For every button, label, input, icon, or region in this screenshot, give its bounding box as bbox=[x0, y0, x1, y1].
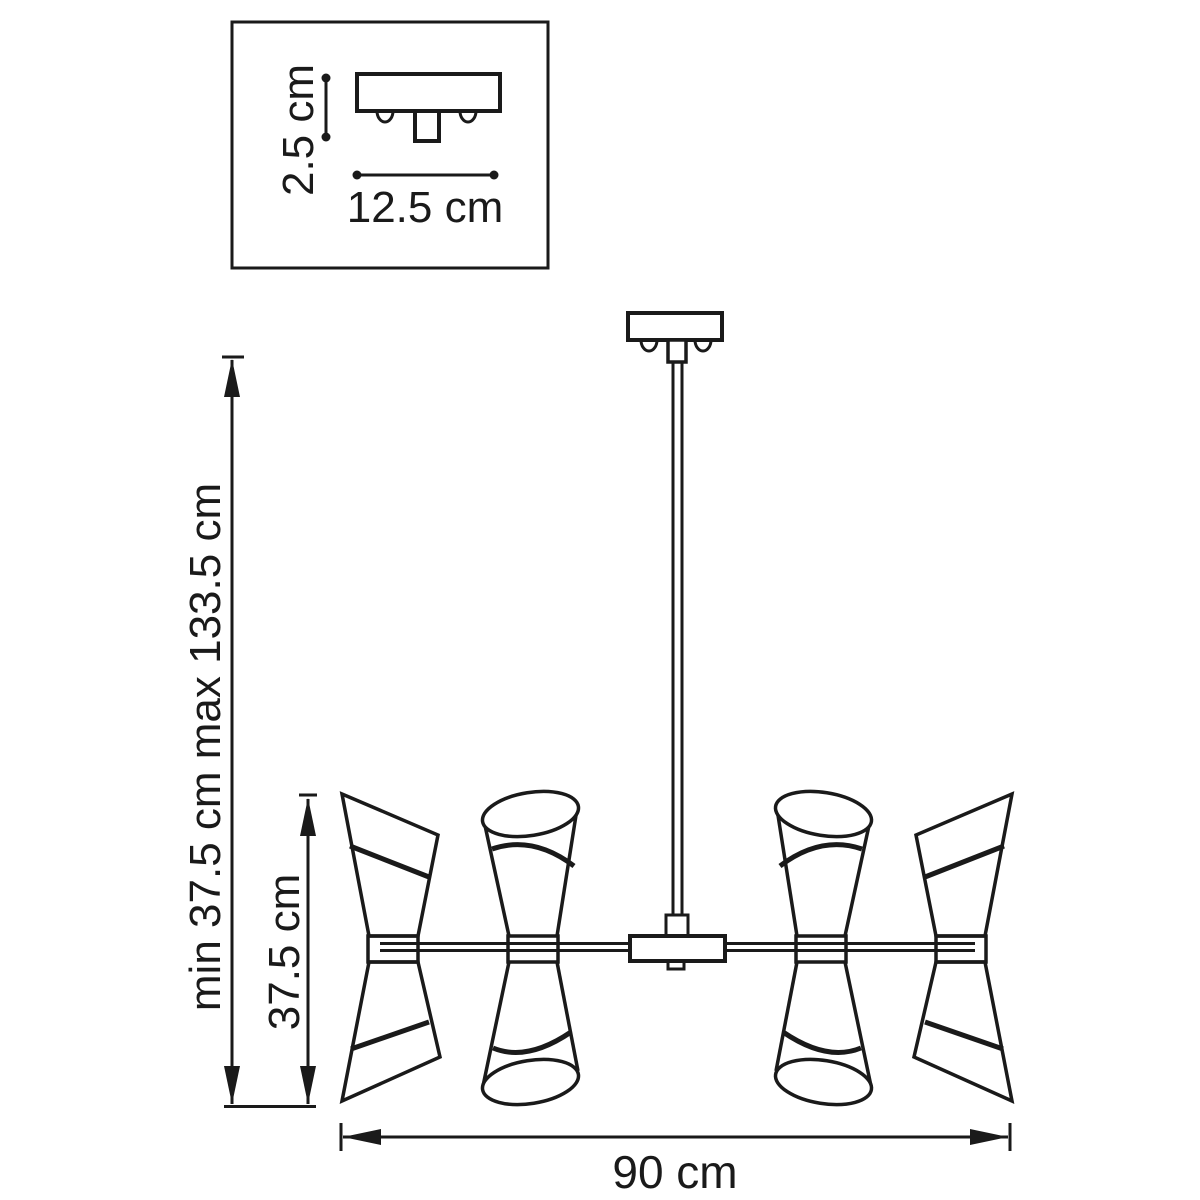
shade-up-cone bbox=[342, 794, 438, 936]
fixture-width-label: 90 cm bbox=[612, 1146, 737, 1198]
arrow-down-icon bbox=[300, 1066, 316, 1104]
ceiling-canopy bbox=[628, 313, 722, 340]
dim-dot bbox=[490, 171, 499, 180]
center-hub bbox=[630, 936, 725, 961]
arrow-down-icon bbox=[224, 1066, 240, 1104]
rod-coupler bbox=[668, 340, 686, 362]
hanging-height-label: min 37.5 cm max 133.5 cm bbox=[181, 483, 230, 1011]
chandelier-dimension-diagram: 2.5 cm 12.5 cm bbox=[0, 0, 1200, 1200]
inset-stem bbox=[415, 111, 439, 141]
shade-down-cone bbox=[342, 962, 440, 1101]
dim-dot bbox=[353, 171, 362, 180]
right-shades bbox=[772, 785, 1012, 1111]
fixture-height-label: 37.5 cm bbox=[260, 874, 309, 1031]
hub-coupler bbox=[666, 915, 688, 937]
inset-canopy-plate bbox=[357, 74, 500, 111]
arrow-left-icon bbox=[343, 1129, 381, 1145]
inset-height-label: 2.5 cm bbox=[274, 64, 323, 196]
left-shades bbox=[342, 785, 582, 1111]
chandelier-drawing bbox=[342, 313, 1012, 1111]
inset-width-label: 12.5 cm bbox=[347, 183, 504, 232]
arrow-right-icon bbox=[970, 1129, 1008, 1145]
dimension-annotations: min 37.5 cm max 133.5 cm 37.5 cm 90 cm bbox=[181, 357, 1010, 1198]
diagram-canvas: 2.5 cm 12.5 cm bbox=[0, 0, 1200, 1200]
hub-finial bbox=[668, 961, 684, 969]
ceiling-mount-inset: 2.5 cm 12.5 cm bbox=[232, 22, 548, 268]
